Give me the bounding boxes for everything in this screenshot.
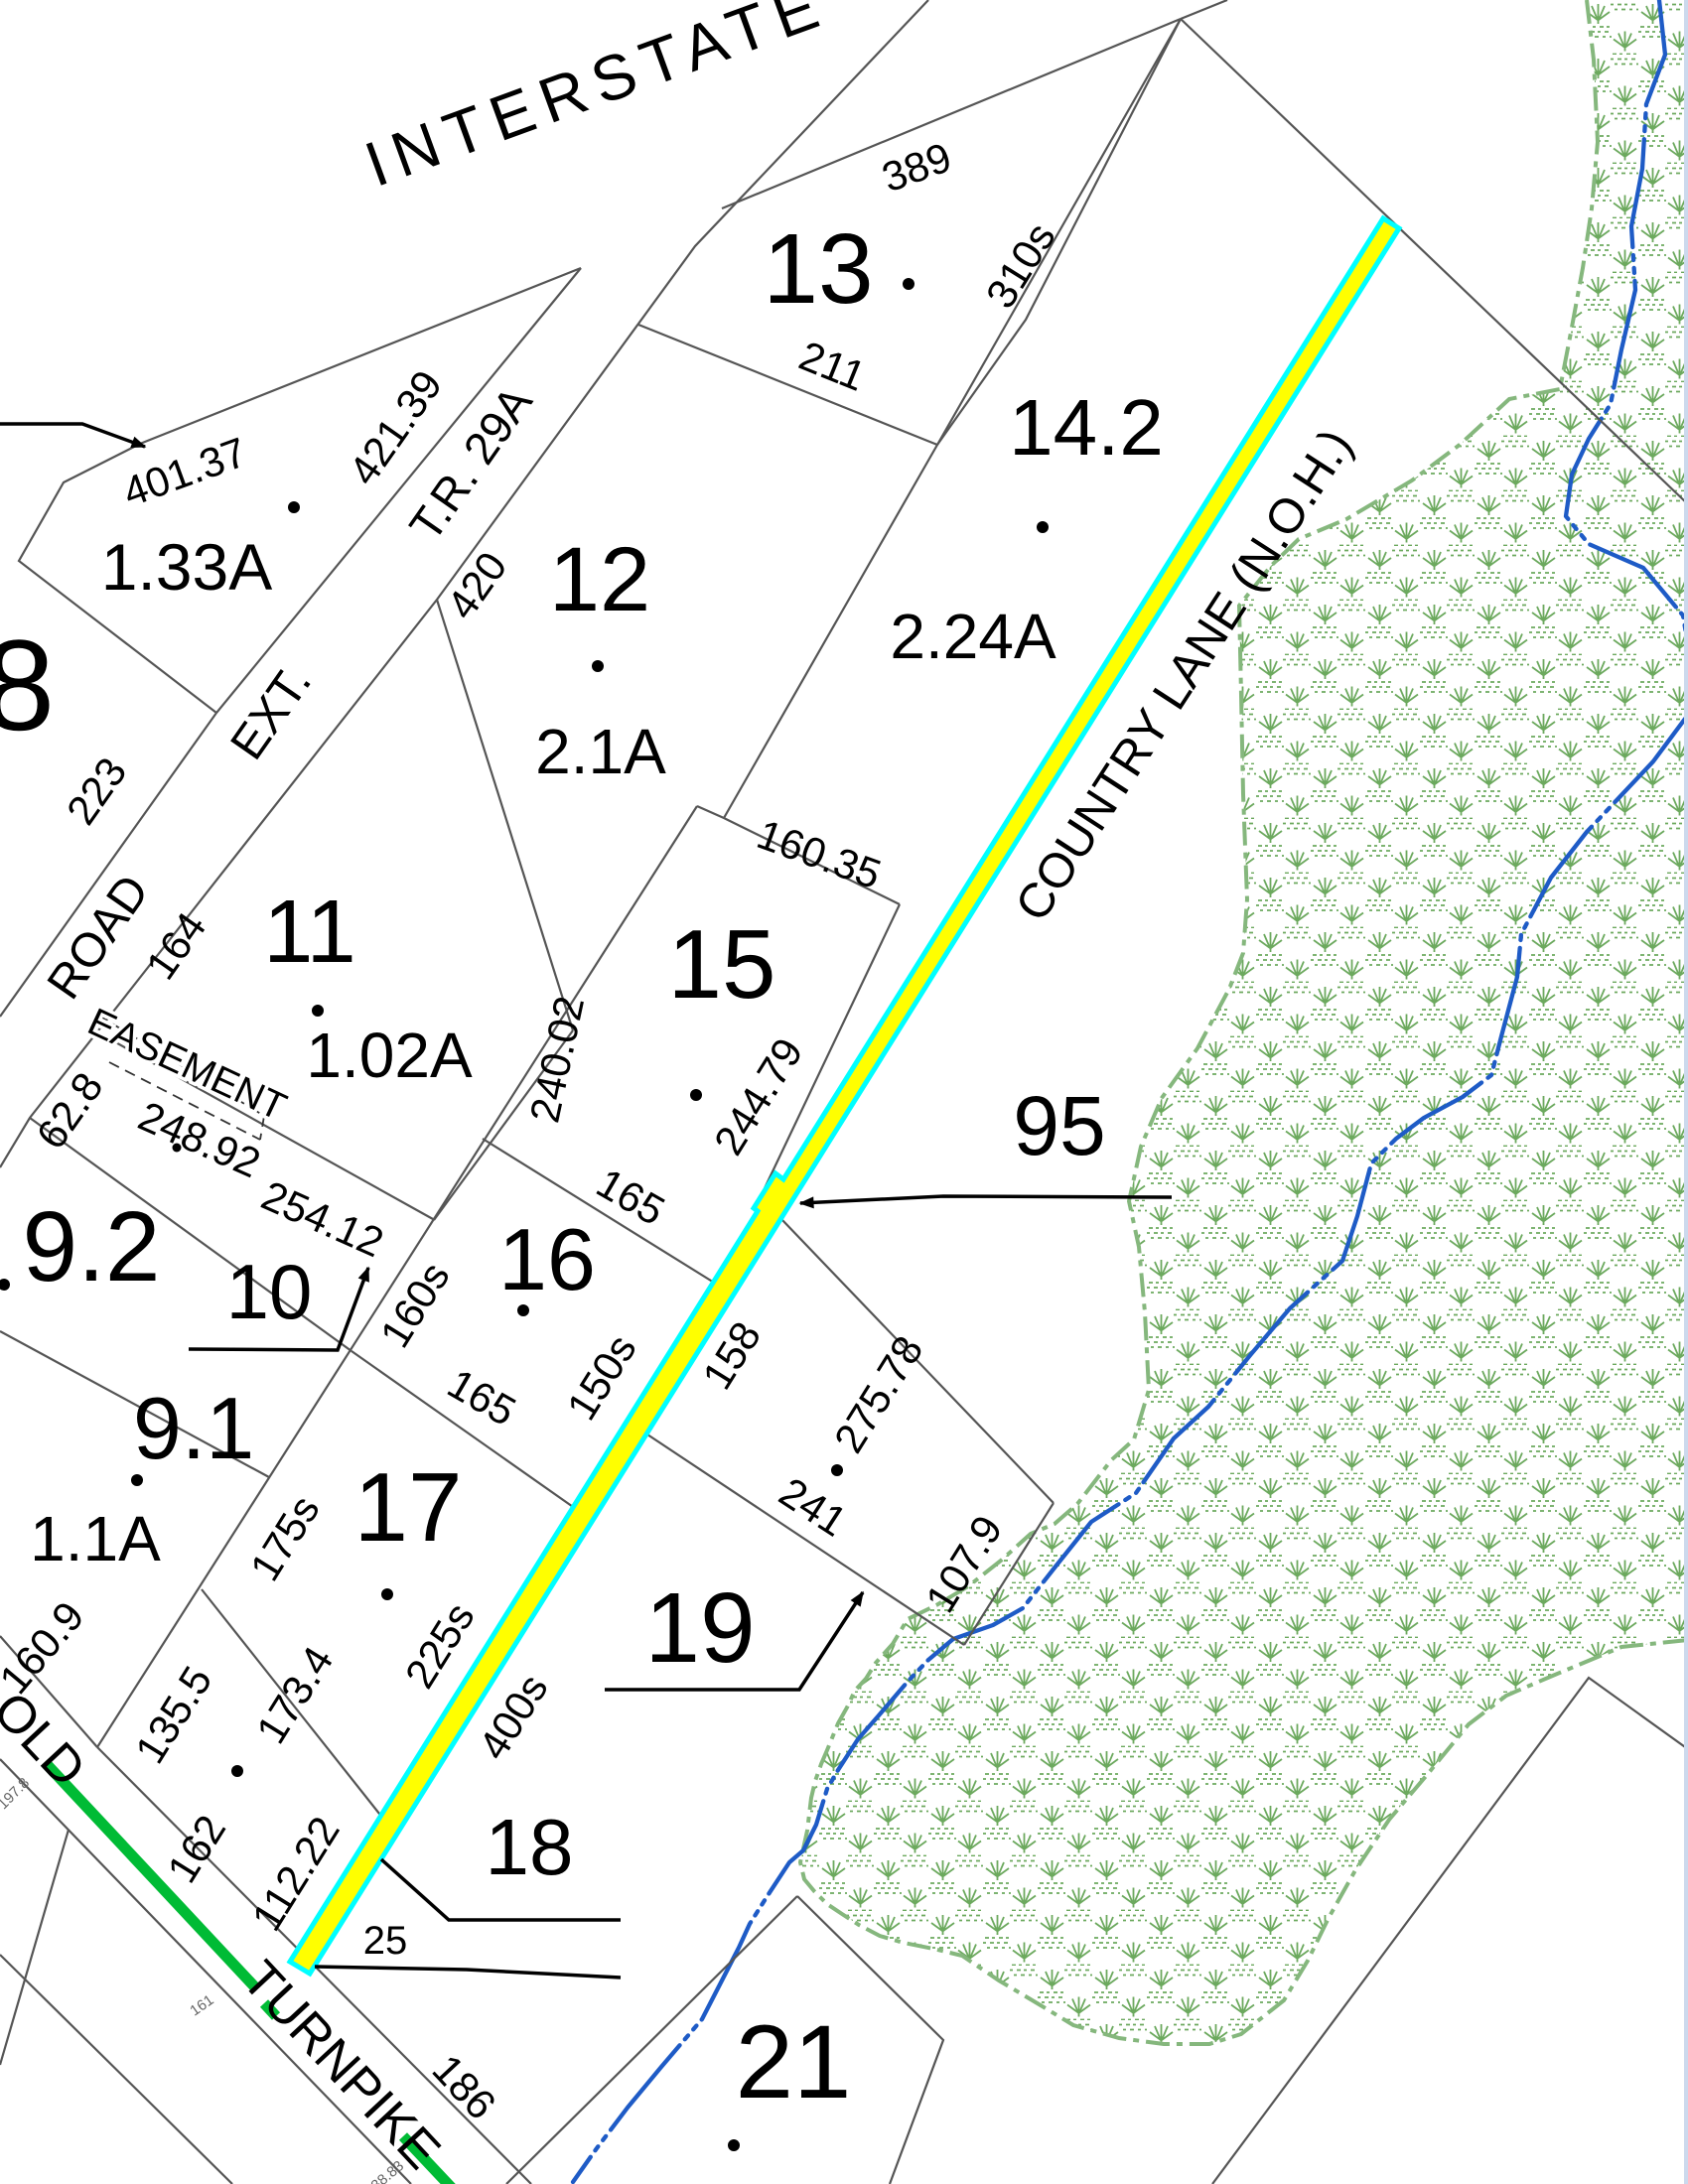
svg-text:17: 17 [353, 1452, 462, 1562]
svg-text:9.2: 9.2 [22, 1191, 160, 1302]
svg-text:25: 25 [363, 1919, 408, 1963]
svg-text:9.1: 9.1 [133, 1379, 254, 1477]
svg-text:14.2: 14.2 [1009, 383, 1164, 472]
svg-text:13: 13 [763, 213, 873, 325]
svg-text:16: 16 [498, 1210, 596, 1308]
svg-text:1.33A: 1.33A [101, 530, 272, 604]
svg-text:2.1A: 2.1A [535, 716, 666, 787]
svg-text:21: 21 [736, 2004, 852, 2120]
svg-text:1.02A: 1.02A [306, 1020, 473, 1091]
svg-text:8: 8 [0, 613, 55, 757]
svg-text:95: 95 [1013, 1079, 1105, 1172]
svg-text:15: 15 [667, 909, 775, 1019]
svg-text:19: 19 [644, 1572, 755, 1684]
svg-text:18: 18 [486, 1803, 574, 1891]
svg-text:12: 12 [549, 529, 650, 630]
svg-text:1.1A: 1.1A [30, 1503, 161, 1574]
svg-text:10: 10 [226, 1248, 313, 1335]
svg-text:2.24A: 2.24A [890, 601, 1056, 672]
svg-text:11: 11 [263, 883, 355, 982]
